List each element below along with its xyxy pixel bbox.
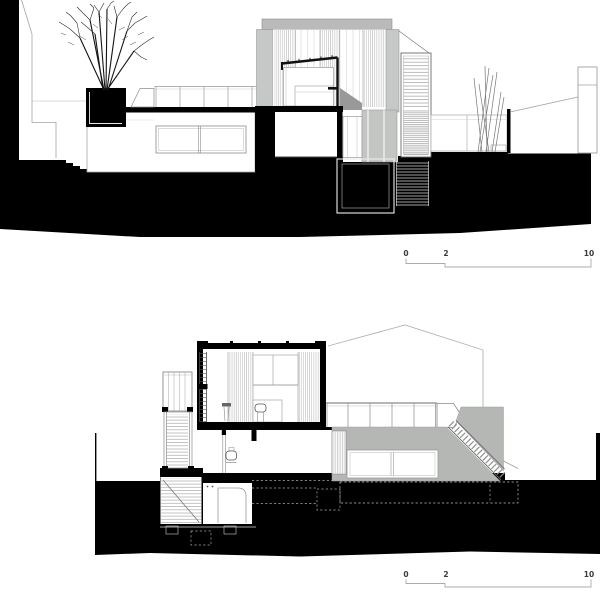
- background-roofline: [328, 325, 483, 407]
- scale-label-2: 2: [443, 570, 448, 579]
- annex-window: [347, 450, 438, 478]
- scale-label-10: 10: [584, 249, 594, 258]
- louver-panel: [332, 431, 346, 474]
- ground-floor-slab: [190, 473, 330, 482]
- pavilion-wall-right: [386, 30, 399, 113]
- left-neighbour-outline: [22, 0, 87, 158]
- drawing-sheet: 0 2 10: [0, 0, 600, 598]
- right-neighbour-chimney: [578, 67, 597, 153]
- roof-tie-line: [399, 31, 429, 53]
- scale-bar-line: [406, 259, 591, 268]
- scale-label-0: 0: [403, 249, 408, 258]
- bottom-scale-bar: 0 2 10: [403, 570, 594, 587]
- annex: [326, 403, 518, 482]
- scale-label-2: 2: [443, 249, 448, 258]
- scale-label-10: 10: [584, 570, 594, 579]
- stair-tower: [162, 372, 194, 472]
- pavilion-wall-left: [257, 30, 274, 112]
- pavilion-floor-slab: [255, 106, 343, 112]
- pavilion-roof-slab: [262, 19, 392, 30]
- mezzanine-interior: [284, 68, 334, 107]
- window-band: [156, 126, 246, 153]
- tree-planter: [86, 88, 126, 127]
- garden-fence: [431, 115, 507, 151]
- roof-slab: [126, 107, 265, 113]
- top-section-drawing: [0, 0, 597, 237]
- wall-right: [320, 344, 326, 430]
- floor-slab: [197, 422, 326, 430]
- neighbour-roof-line: [510, 97, 578, 112]
- architectural-sections-canvas: 0 2 10: [0, 0, 600, 598]
- louver-stair-tower: [401, 53, 431, 157]
- left-party-wall: [0, 0, 19, 161]
- bottom-section-drawing: [95, 325, 600, 557]
- wall-ladder: [199, 352, 208, 423]
- bare-tree: [59, 1, 154, 90]
- glazed-door: [343, 117, 362, 158]
- basement-stair: [396, 161, 429, 206]
- main-volume: [190, 341, 333, 482]
- roof-railing: [154, 86, 257, 107]
- boundary-wall: [507, 109, 511, 153]
- rear-gray-wall: [362, 110, 397, 162]
- top-scale-bar: 0 2 10: [403, 249, 594, 267]
- scale-label-0: 0: [403, 570, 408, 579]
- skylight-box: [131, 89, 154, 108]
- basement-room: [203, 483, 252, 524]
- roof-band: [197, 343, 326, 349]
- scale-bar-line: [406, 580, 591, 588]
